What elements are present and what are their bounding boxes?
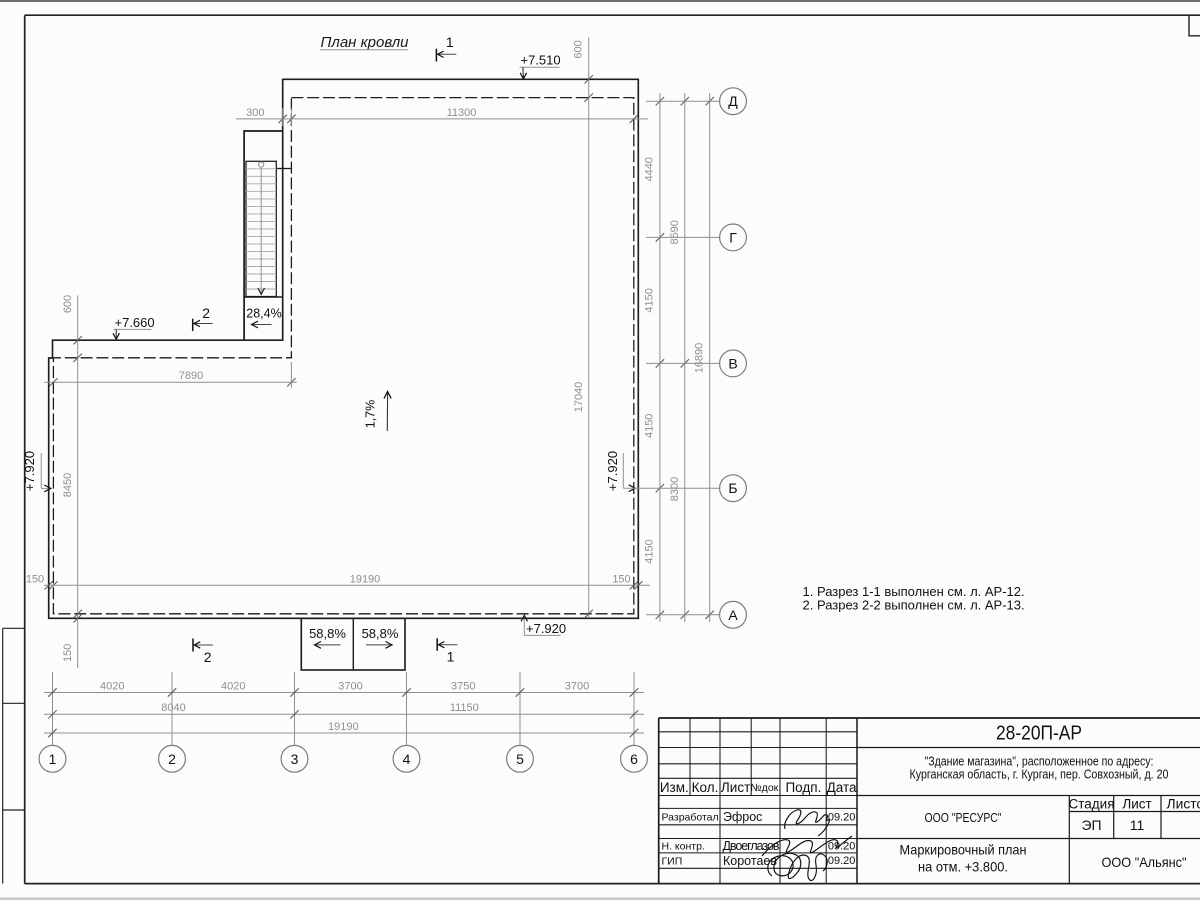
svg-text:Д: Д [728, 93, 738, 109]
svg-text:2: 2 [202, 305, 210, 321]
svg-text:Листов: Листов [1167, 796, 1200, 811]
svg-text:1: 1 [446, 34, 454, 50]
svg-text:Дата: Дата [827, 780, 857, 795]
svg-text:Курганская область, г. Курган,: Курганская область, г. Курган, пер. Совх… [910, 768, 1169, 782]
svg-text:+7.660: +7.660 [115, 315, 155, 330]
svg-text:2. Разрез 2-2 выполнен см. л.: 2. Разрез 2-2 выполнен см. л. АР-13. [803, 597, 1025, 612]
svg-text:3700: 3700 [565, 680, 589, 692]
svg-text:09.20: 09.20 [828, 840, 856, 852]
svg-text:16890: 16890 [694, 343, 706, 374]
svg-text:Г: Г [729, 229, 737, 245]
svg-text:600: 600 [62, 295, 74, 313]
svg-text:5: 5 [516, 751, 524, 767]
svg-text:+7.920: +7.920 [22, 451, 37, 491]
svg-text:на отм. +3.800.: на отм. +3.800. [918, 859, 1008, 875]
svg-text:4150: 4150 [644, 539, 656, 563]
svg-text:11150: 11150 [450, 702, 479, 714]
svg-text:4: 4 [403, 751, 411, 767]
svg-text:А: А [728, 607, 738, 623]
svg-text:+7.920: +7.920 [605, 451, 620, 491]
svg-text:2: 2 [204, 649, 212, 665]
svg-text:8300: 8300 [669, 477, 681, 501]
svg-text:ООО "РЕСУРС": ООО "РЕСУРС" [925, 810, 1002, 825]
svg-text:8450: 8450 [62, 473, 74, 497]
svg-text:58,8%: 58,8% [309, 626, 346, 641]
svg-text:4020: 4020 [221, 680, 245, 692]
svg-text:ЭП: ЭП [1081, 817, 1101, 833]
svg-text:1: 1 [49, 751, 57, 767]
svg-text:11300: 11300 [447, 107, 477, 119]
svg-text:4150: 4150 [644, 288, 656, 312]
svg-text:6: 6 [630, 751, 638, 767]
svg-text:№док.: №док. [750, 782, 781, 794]
svg-text:1,7%: 1,7% [364, 400, 378, 429]
svg-text:ГИП: ГИП [662, 856, 683, 868]
svg-text:Б: Б [728, 480, 737, 496]
svg-text:1: 1 [447, 649, 455, 665]
svg-text:600: 600 [573, 40, 585, 58]
svg-text:Коротаев: Коротаев [723, 854, 777, 868]
svg-text:4020: 4020 [100, 680, 124, 692]
svg-text:3700: 3700 [338, 680, 362, 692]
svg-text:План кровли: План кровли [321, 34, 410, 51]
svg-text:Изм.: Изм. [660, 780, 689, 795]
svg-text:4150: 4150 [644, 414, 656, 438]
svg-text:"Здание магазина", расположенн: "Здание магазина", расположенное по адре… [925, 755, 1154, 769]
svg-text:+7.510: +7.510 [521, 53, 561, 68]
svg-text:Разработал: Разработал [662, 812, 719, 824]
svg-text:150: 150 [26, 573, 44, 585]
svg-text:Стадия: Стадия [1068, 796, 1114, 811]
svg-text:8590: 8590 [669, 220, 681, 244]
svg-text:28,4%: 28,4% [246, 307, 281, 321]
svg-text:17040: 17040 [573, 382, 585, 413]
svg-text:В: В [728, 355, 737, 371]
svg-text:28-20П-АР: 28-20П-АР [996, 723, 1082, 745]
svg-text:Н. контр.: Н. контр. [662, 841, 705, 853]
svg-text:150: 150 [612, 573, 630, 585]
svg-text:4440: 4440 [644, 157, 656, 181]
svg-text:58,8%: 58,8% [362, 626, 399, 641]
svg-text:19190: 19190 [328, 721, 359, 733]
svg-text:Подп.: Подп. [785, 780, 821, 795]
svg-text:+7.920: +7.920 [526, 621, 566, 636]
svg-text:8040: 8040 [161, 702, 185, 714]
svg-text:09.20: 09.20 [828, 855, 856, 867]
svg-text:3: 3 [291, 751, 299, 767]
svg-text:09.20: 09.20 [828, 811, 856, 823]
svg-text:Эфрос: Эфрос [723, 810, 762, 824]
svg-text:Кол.: Кол. [692, 780, 719, 795]
svg-text:ООО "Альянс": ООО "Альянс" [1102, 854, 1187, 870]
svg-text:Маркировочный план: Маркировочный план [900, 842, 1027, 858]
svg-text:19190: 19190 [350, 573, 381, 585]
svg-text:150: 150 [62, 644, 74, 662]
svg-text:2: 2 [168, 751, 176, 767]
svg-text:3750: 3750 [451, 680, 475, 692]
svg-text:300: 300 [246, 107, 264, 119]
svg-text:7890: 7890 [179, 370, 203, 382]
svg-text:Лист: Лист [721, 780, 750, 795]
svg-text:Лист: Лист [1122, 796, 1151, 811]
svg-text:11: 11 [1130, 817, 1145, 833]
